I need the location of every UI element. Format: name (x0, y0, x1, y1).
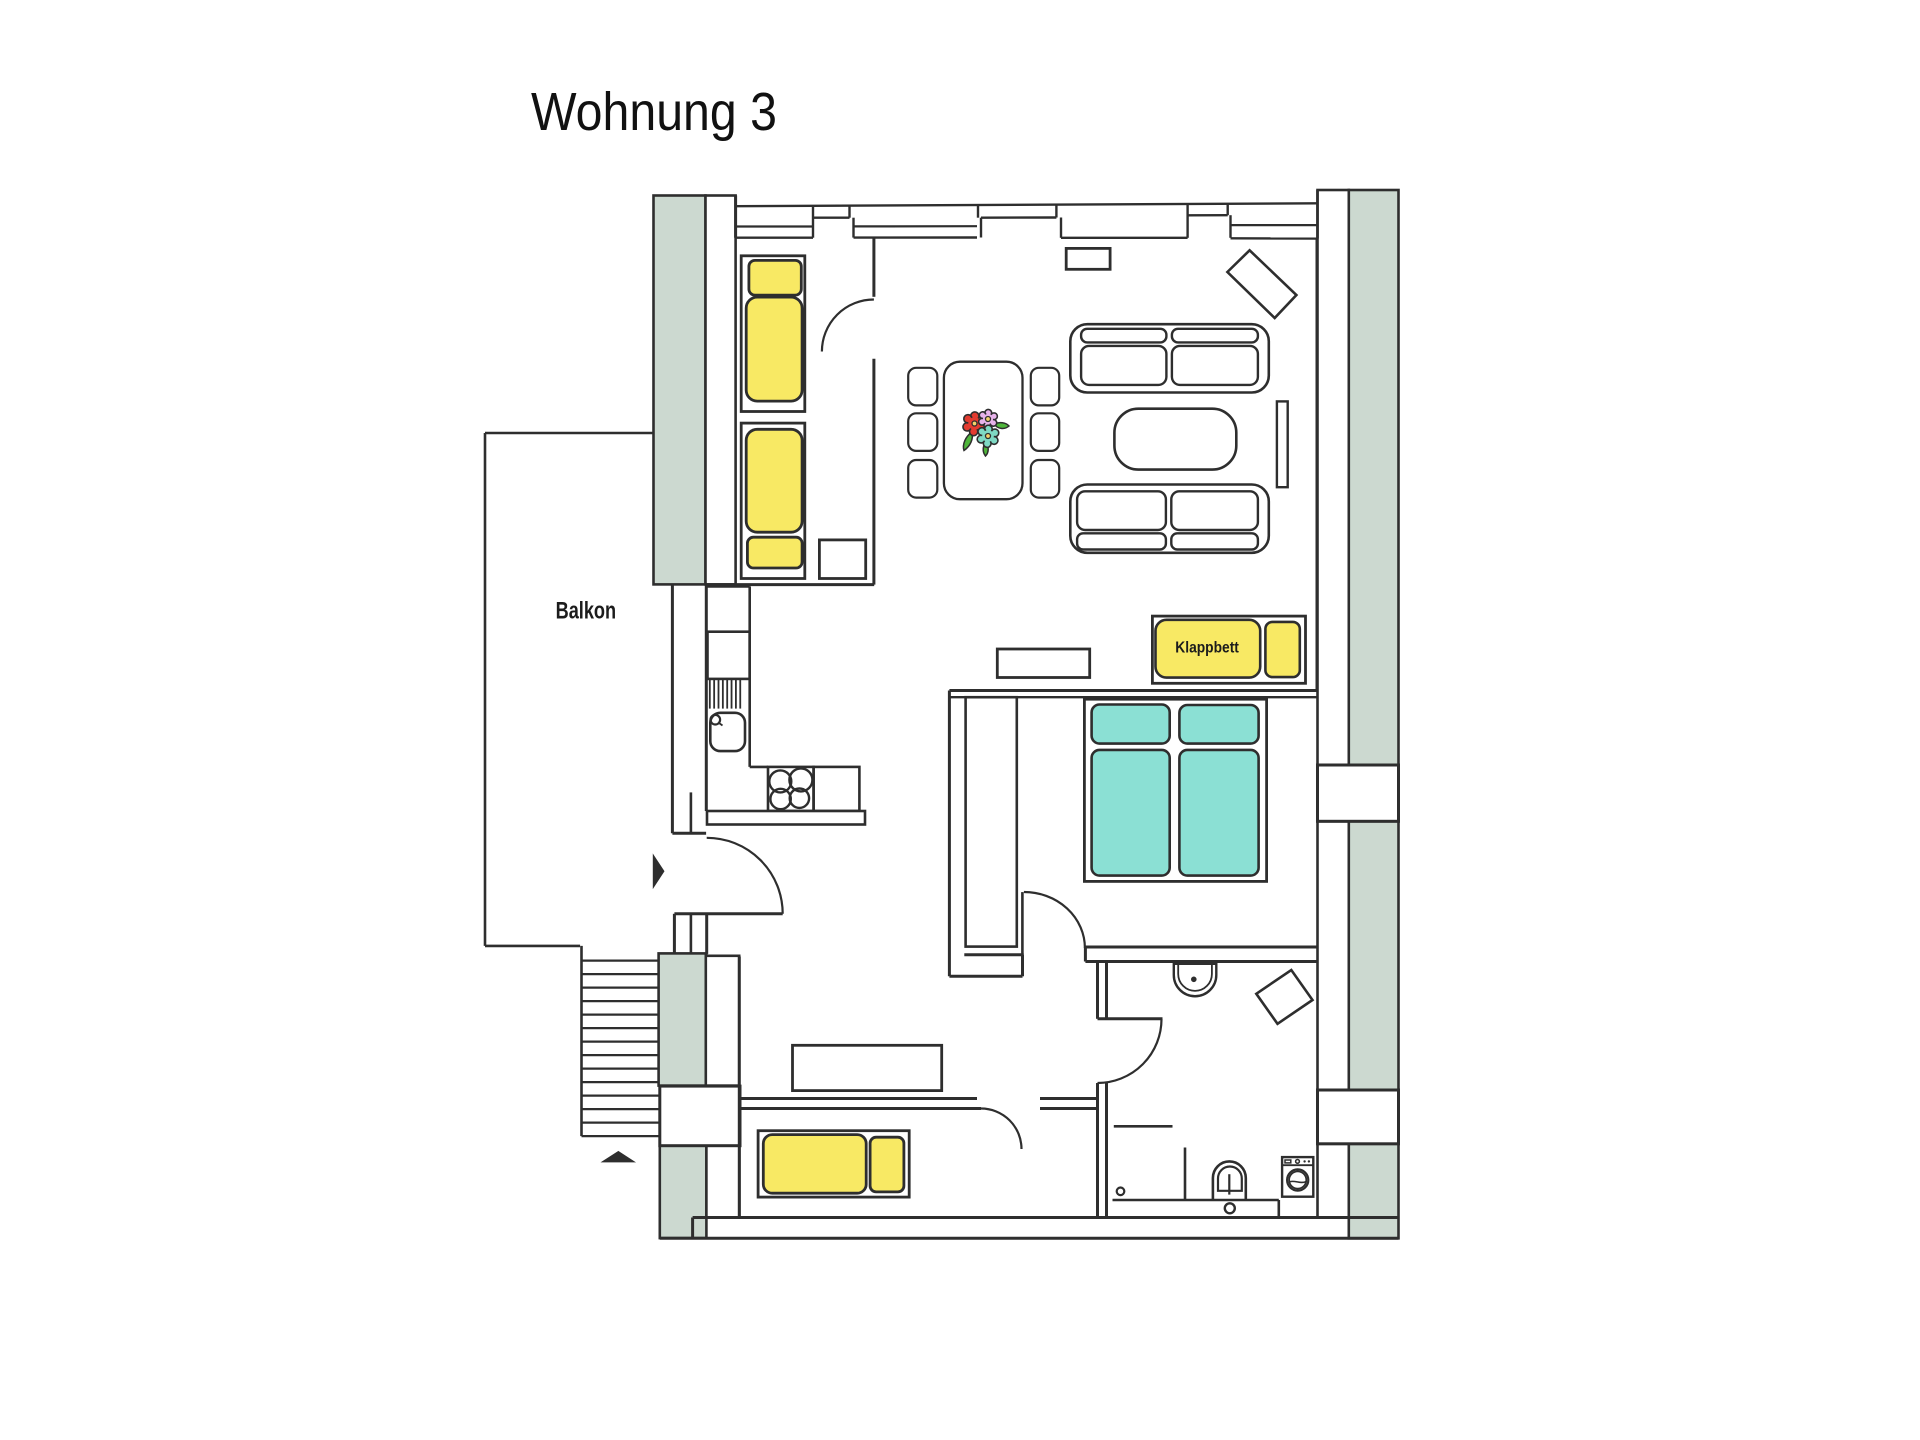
svg-text:Balkon: Balkon (556, 597, 617, 624)
svg-text:Klappbett: Klappbett (1175, 640, 1239, 657)
svg-text:Wohnung 3: Wohnung 3 (531, 82, 777, 142)
